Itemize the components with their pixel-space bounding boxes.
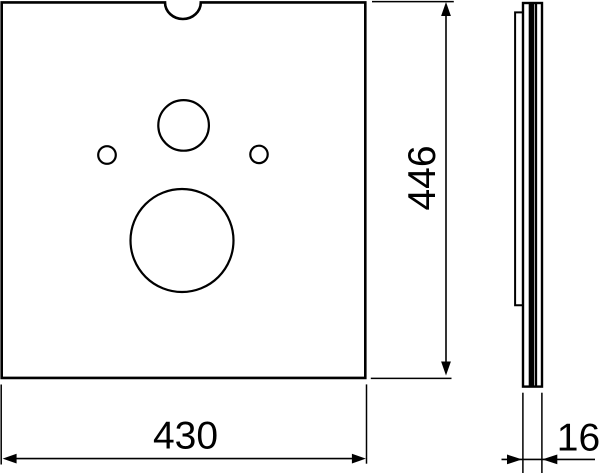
svg-text:446: 446 (401, 145, 444, 210)
svg-text:430: 430 (153, 415, 218, 458)
svg-text:16: 16 (557, 417, 600, 460)
